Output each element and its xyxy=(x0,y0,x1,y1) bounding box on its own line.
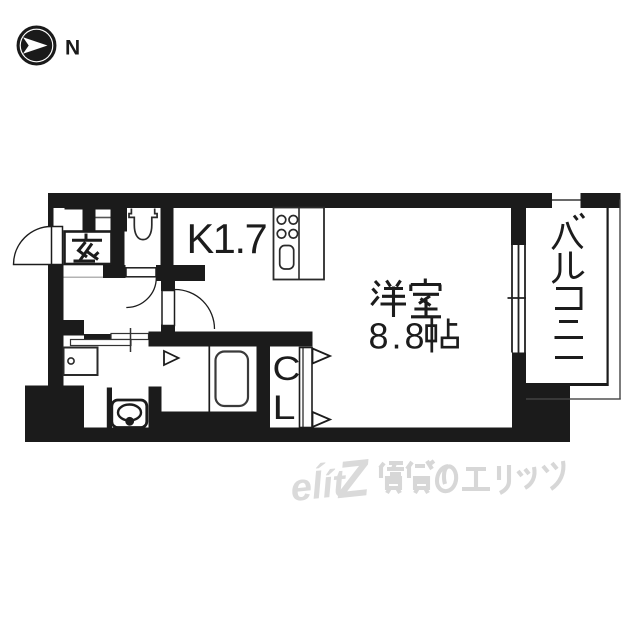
svg-text:N: N xyxy=(65,37,80,60)
svg-text:C: C xyxy=(273,350,301,388)
svg-text:8.8: 8.8 xyxy=(369,316,428,357)
svg-text:K1.7: K1.7 xyxy=(187,215,267,262)
svg-text:L: L xyxy=(273,389,296,427)
